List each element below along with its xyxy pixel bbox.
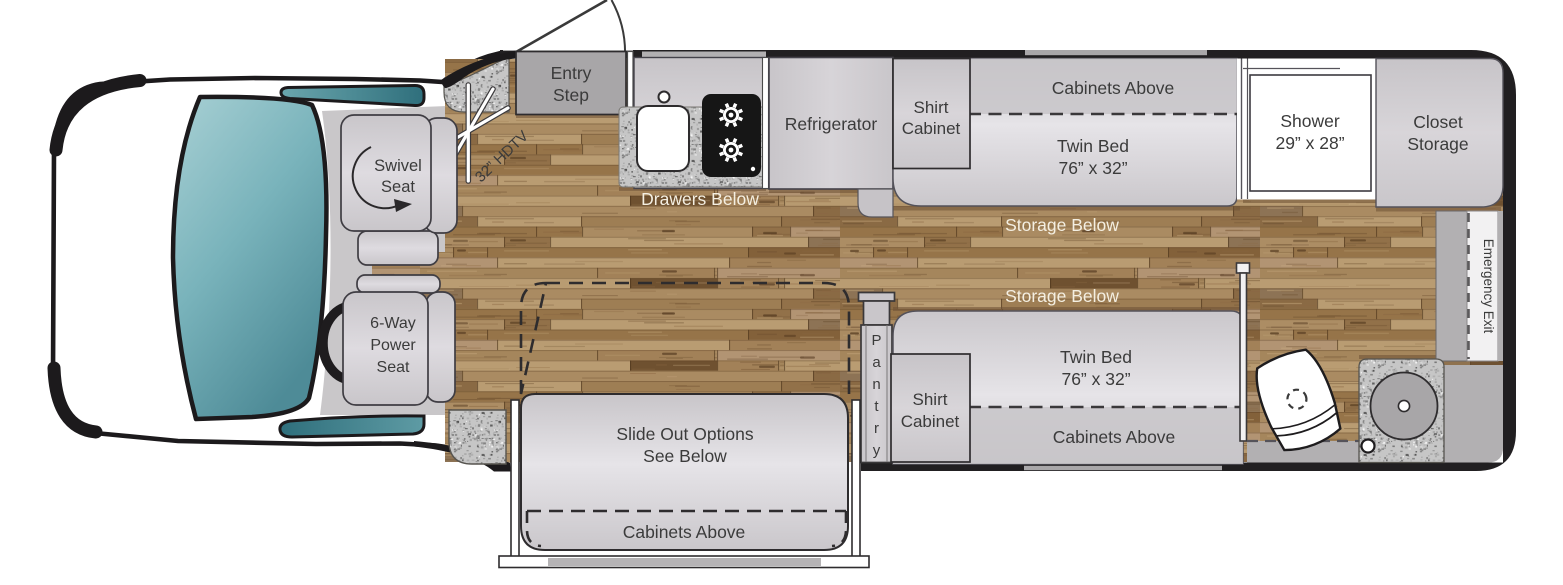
svg-text:a: a [872, 354, 881, 371]
svg-text:Slide Out Options: Slide Out Options [616, 424, 753, 444]
svg-text:Emergency Exit: Emergency Exit [1481, 239, 1496, 334]
svg-text:Swivel: Swivel [374, 157, 422, 175]
svg-text:Twin Bed: Twin Bed [1057, 136, 1129, 156]
svg-text:Cabinets Above: Cabinets Above [623, 522, 746, 542]
svg-text:Step: Step [553, 85, 589, 105]
svg-text:n: n [872, 376, 880, 393]
svg-text:Seat: Seat [381, 178, 415, 196]
svg-text:Power: Power [370, 337, 416, 354]
svg-text:Shirt: Shirt [913, 390, 948, 409]
svg-text:y: y [873, 442, 881, 459]
svg-text:Cabinets Above: Cabinets Above [1052, 78, 1175, 98]
svg-text:76” x 32”: 76” x 32” [1061, 369, 1130, 389]
svg-text:Cabinet: Cabinet [902, 119, 961, 138]
svg-text:Twin Bed: Twin Bed [1060, 347, 1132, 367]
svg-text:Storage Below: Storage Below [1005, 286, 1119, 306]
svg-text:Storage: Storage [1407, 134, 1468, 154]
svg-text:Cabinets Above: Cabinets Above [1053, 427, 1176, 447]
svg-text:Entry: Entry [551, 63, 592, 83]
svg-text:Cabinet: Cabinet [901, 412, 960, 431]
svg-text:29” x 28”: 29” x 28” [1275, 133, 1344, 153]
svg-text:P: P [871, 332, 881, 349]
svg-text:Shower: Shower [1280, 111, 1340, 131]
svg-text:Refrigerator: Refrigerator [785, 114, 878, 134]
svg-text:76” x 32”: 76” x 32” [1058, 158, 1127, 178]
svg-text:6-Way: 6-Way [370, 315, 416, 332]
svg-text:Drawers Below: Drawers Below [641, 189, 759, 209]
svg-text:Closet: Closet [1413, 112, 1463, 132]
svg-text:Storage Below: Storage Below [1005, 215, 1119, 235]
svg-text:Seat: Seat [377, 359, 410, 376]
svg-text:See Below: See Below [643, 446, 727, 466]
svg-text:Shirt: Shirt [914, 98, 949, 117]
svg-text:r: r [874, 420, 879, 437]
